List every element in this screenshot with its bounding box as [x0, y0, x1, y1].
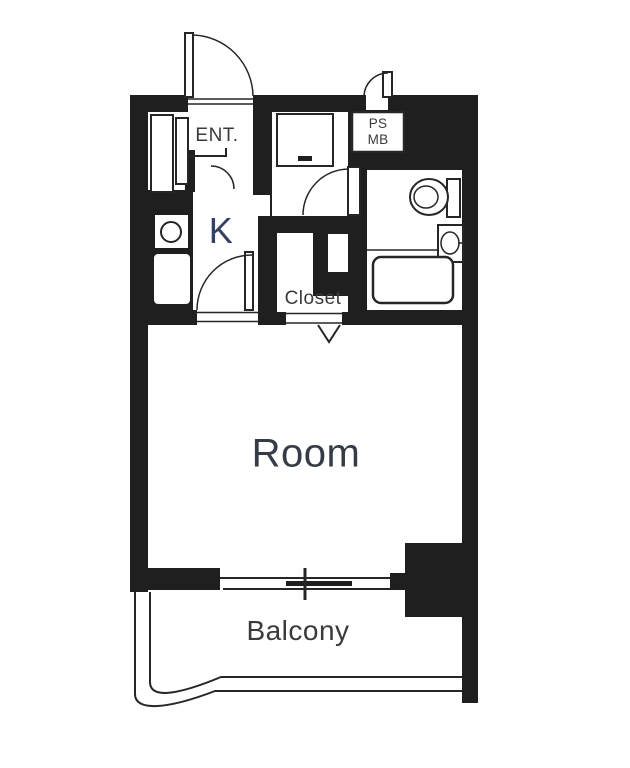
kitchen-stove-inset — [155, 215, 188, 248]
floor-plan: ENT. PS MB K Closet Room Balcony — [0, 0, 630, 768]
balcony-label: Balcony — [246, 615, 349, 647]
bathroom-bottom-wall — [352, 310, 462, 325]
window-sash-bar — [286, 581, 352, 586]
kitchen-sink-inset — [154, 254, 190, 304]
pipe-space-label-line1: PS — [368, 116, 389, 132]
closet-door-arrow-icon — [318, 325, 340, 342]
meter-box-door-leaf — [383, 72, 392, 97]
entrance-door-leaf — [185, 33, 193, 97]
room-divider-wall-left — [148, 310, 197, 325]
window-right-post — [390, 573, 406, 590]
floor-plan-drawing — [0, 0, 630, 768]
pipe-space-label: PS MB — [368, 116, 389, 148]
entrance-door-swing-arc — [193, 35, 253, 96]
toilet-bowl-icon — [410, 179, 448, 215]
shoe-cabinet-small-icon — [176, 118, 188, 184]
corner-pillar — [405, 543, 462, 617]
entry-hall-divider-wall — [253, 95, 272, 195]
kitchen-door-leaf — [245, 252, 253, 310]
bathtub-icon — [373, 257, 453, 303]
left-wall — [130, 95, 148, 592]
room-bottom-wall — [130, 568, 220, 590]
room-label: Room — [252, 432, 361, 477]
kitchen-label: K — [209, 210, 234, 252]
closet-label: Closet — [285, 288, 342, 310]
washing-machine-slot — [298, 156, 312, 161]
bathroom-door-leaf — [348, 167, 360, 215]
entrance-label: ENT. — [195, 125, 238, 147]
closet-niche — [328, 234, 348, 272]
right-wall — [462, 95, 478, 703]
kitchen-door-swing-arc — [197, 255, 252, 310]
shoe-cabinet-icon — [151, 115, 173, 192]
pipe-space-label-line2: MB — [368, 132, 389, 148]
